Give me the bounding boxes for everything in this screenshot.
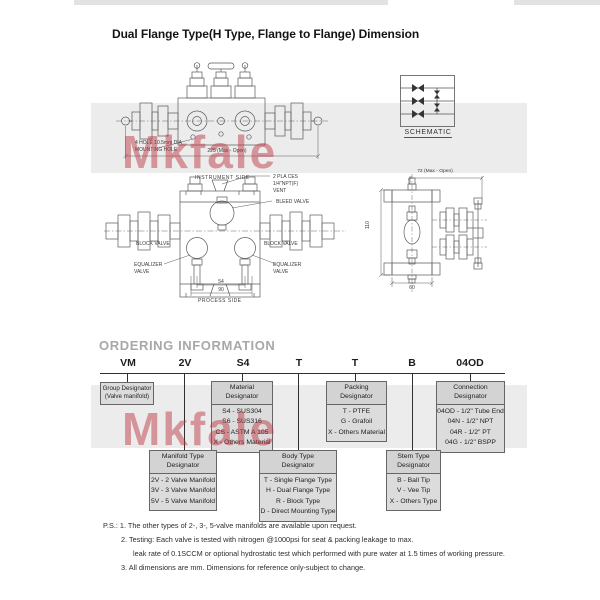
schematic-caption: SCHEMATIC <box>399 129 457 136</box>
stem-item: X - Others Type <box>387 497 440 508</box>
plan-equalizer-right-line1: EQUALIZER <box>273 262 301 268</box>
plan-vent-label-line1: 2 PLA CES <box>273 174 298 180</box>
plan-bleed-valve-label: BLEED VALVE <box>276 199 309 205</box>
packing-box-header: PackingDesignator <box>327 382 386 405</box>
packing-designator-box: PackingDesignator T - PTFE G - Grafoil X… <box>326 381 387 442</box>
connection-item: 04R - 1/2" PT <box>437 428 504 439</box>
plan-dim-90: 90 <box>211 287 231 293</box>
manifold-item: 3V - 3 Valve Manifold <box>150 486 216 497</box>
side-depth-dimension: 60 <box>392 285 432 291</box>
connector-vm <box>127 374 128 382</box>
connector-04od <box>470 374 471 381</box>
packing-item: T - PTFE <box>327 407 386 418</box>
schematic-diagram <box>400 75 455 127</box>
stem-box-header: Stem TypeDesignator <box>387 451 440 474</box>
ordering-heading: ORDERING INFORMATION <box>99 338 275 353</box>
plan-equalizer-left-line1: EQUALIZER <box>134 262 162 268</box>
manifold-item: 2V - 2 Valve Manifold <box>150 476 216 487</box>
connection-designator-box: ConnectionDesignator 04OD - 1/2" Tube En… <box>436 381 505 453</box>
plan-vent-label-line2: 1/4"NPT(F) <box>273 181 298 187</box>
side-height-dimension: 110 <box>365 215 371 235</box>
footnote-2: 2. Testing: Each valve is tested with ni… <box>121 535 413 544</box>
top-edge-strip-left <box>74 0 388 5</box>
connector-s4 <box>242 374 243 381</box>
plan-dim-54: 54 <box>211 279 231 285</box>
code-part-vm: VM <box>103 357 153 369</box>
connector-t2 <box>355 374 356 381</box>
stem-type-designator-box: Stem TypeDesignator B - Ball Tip V - Vee… <box>386 450 441 511</box>
footnote-1: P.S.: 1. The other types of 2-, 3-, 5-va… <box>103 521 357 530</box>
connection-box-header: ConnectionDesignator <box>437 382 504 405</box>
footnote-3: 3. All dimensions are mm. Dimensions for… <box>121 563 365 572</box>
body-item: D - Direct Mounting Type <box>260 507 336 518</box>
connector-b <box>412 374 413 450</box>
material-box-header: MaterialDesignator <box>212 382 272 405</box>
code-part-04od: 04OD <box>445 357 495 369</box>
footnote-2-continued: leak rate of 0.1SCCM or optional hydrost… <box>133 549 505 558</box>
plan-block-valve-right-label: BLOCK VALVE <box>264 241 298 247</box>
side-width-dimension: 72 (Max - Open) <box>390 169 480 175</box>
packing-item: G - Grafoil <box>327 417 386 428</box>
connection-item: 04G - 1/2" BSPP <box>437 438 504 449</box>
material-item: S4 - SUS304 <box>212 407 272 418</box>
side-view-drawing <box>375 170 495 300</box>
packing-item: X - Others Material <box>327 428 386 439</box>
connector-t1 <box>298 374 299 450</box>
manifold-box-header: Manifold TypeDesignator <box>150 451 216 474</box>
stem-item: V - Vee Tip <box>387 486 440 497</box>
catalog-page: Dual Flange Type(H Type, Flange to Flang… <box>0 0 600 600</box>
code-part-2v: 2V <box>160 357 210 369</box>
page-title: Dual Flange Type(H Type, Flange to Flang… <box>112 27 419 41</box>
stem-item: B - Ball Tip <box>387 476 440 487</box>
connection-item: 04OD - 1/2" Tube End <box>437 407 504 418</box>
manifold-item: 5V - 5 Valve Manifold <box>150 497 216 508</box>
body-item: H - Dual Flange Type <box>260 486 336 497</box>
connector-2v <box>184 374 185 450</box>
top-edge-strip-right <box>514 0 600 5</box>
code-part-t1: T <box>274 357 324 369</box>
material-item: X - Others Material <box>212 438 272 449</box>
plan-equalizer-left-line2: VALVE <box>134 269 149 275</box>
body-type-designator-box: Body TypeDesignator T - Single Flange Ty… <box>259 450 337 522</box>
manifold-type-designator-box: Manifold TypeDesignator 2V - 2 Valve Man… <box>149 450 217 511</box>
body-item: R - Block Type <box>260 497 336 508</box>
code-part-t2: T <box>330 357 380 369</box>
plan-block-valve-left-label: BLOCK VALVE <box>136 241 170 247</box>
plan-process-side-label: PROCESS SIDE <box>198 298 242 304</box>
code-part-s4: S4 <box>218 357 268 369</box>
front-width-dimension: 225 (Max - Open) <box>192 148 262 154</box>
material-item: S6 - SUS316 <box>212 417 272 428</box>
plan-instrument-side-label: INSTRUMENT SIDE <box>195 175 250 181</box>
material-designator-box: MaterialDesignator S4 - SUS304 S6 - SUS3… <box>211 381 273 453</box>
code-part-b: B <box>387 357 437 369</box>
ordering-rule <box>100 373 505 374</box>
plan-equalizer-right-line2: VALVE <box>273 269 288 275</box>
body-item: T - Single Flange Type <box>260 476 336 487</box>
front-mounting-label-line2: MOUNTING HOLE <box>135 147 177 153</box>
connection-item: 04N - 1/2" NPT <box>437 417 504 428</box>
plan-vent-label-line3: VENT <box>273 188 286 194</box>
body-box-header: Body TypeDesignator <box>260 451 336 474</box>
material-item: CS - ASTM A 105 <box>212 428 272 439</box>
front-mounting-label-line1: 4 HOLE 10.5mm DIA <box>135 140 182 146</box>
group-designator-box: Group Designator (Valve manifold) <box>100 382 154 405</box>
